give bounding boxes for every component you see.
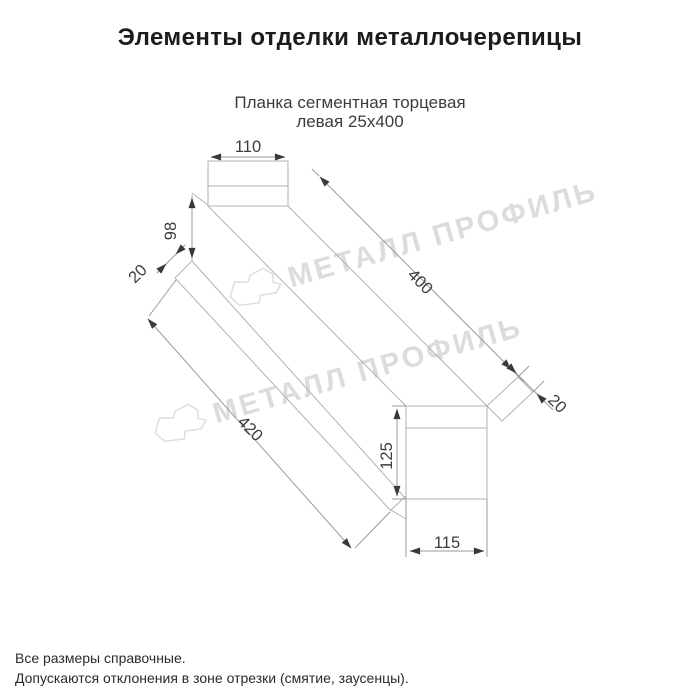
dim-top-edge-length: 400: [404, 266, 436, 298]
watermark-text: МЕТАЛЛ ПРОФИЛЬ: [209, 311, 526, 430]
brand-cloud-logo-icon: [225, 265, 284, 310]
watermark-lower: МЕТАЛЛ ПРОФИЛЬ: [150, 310, 526, 447]
footnotes: Все размеры справочные. Допускаются откл…: [15, 648, 409, 688]
watermark-text: МЕТАЛЛ ПРОФИЛЬ: [284, 175, 601, 294]
footnote-line2: Допускаются отклонения в зоне отрезки (с…: [15, 668, 409, 688]
watermark-upper: МЕТАЛЛ ПРОФИЛЬ: [225, 174, 601, 311]
brand-cloud-logo-icon: [150, 401, 209, 446]
page: Элементы отделки металлочерепицы Планка …: [0, 0, 700, 700]
dim-left-hem: 20: [125, 261, 151, 287]
dim-right-hem: 20: [544, 391, 570, 417]
footnote-line1: Все размеры справочные.: [15, 648, 409, 668]
technical-drawing: МЕТАЛЛ ПРОФИЛЬ МЕТАЛЛ ПРОФИЛЬ: [0, 0, 700, 700]
dim-right-face-height: 125: [378, 442, 396, 470]
dim-top-flange-width: 110: [235, 138, 261, 156]
dim-right-face-width: 115: [434, 534, 460, 552]
dim-left-face-height: 98: [162, 222, 180, 240]
